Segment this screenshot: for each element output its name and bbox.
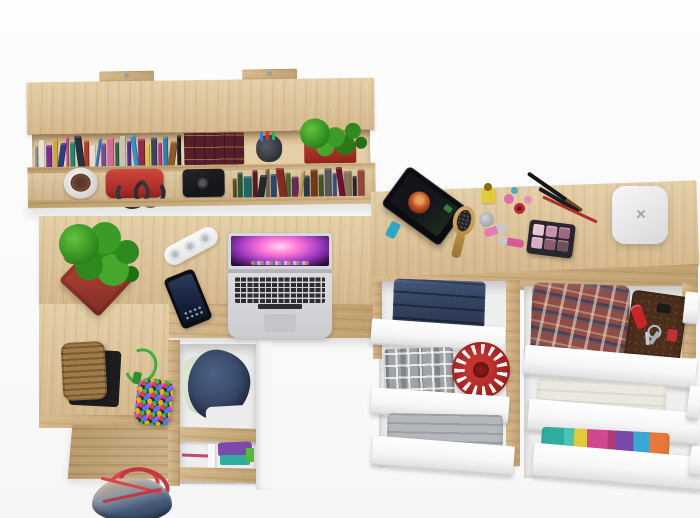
encyclopedia-books [184,132,244,165]
palette-pan [545,225,557,237]
book-spine [115,142,120,166]
laptop-deck [228,273,332,338]
hairbrush-handle [451,232,466,258]
book-spine [107,137,114,166]
pink-pencil [182,454,208,458]
car-key-fob [656,303,671,314]
succulent-plant [59,224,99,264]
desk-pedestal [168,340,270,490]
palette-pan [544,238,556,250]
camera-lens [197,177,209,189]
book-spine [138,139,145,166]
book-spine [146,144,151,166]
palette-pan [532,224,544,236]
book-spine [101,144,106,167]
book-spine [66,137,70,167]
power-socket [197,230,213,246]
laptop-screen-lid [228,233,332,269]
wireless-router [612,186,668,244]
book-spine [358,170,365,197]
laptop-dock [251,261,309,265]
book-spine [325,168,332,197]
movie-artwork [404,187,435,218]
book-spine [177,135,182,165]
red-knit-hat [452,342,510,398]
palette-pan [558,227,570,239]
laptop-screen [231,236,329,266]
bag-body [92,478,172,518]
pen [260,132,263,141]
drawer-divider [208,444,215,468]
book-spine [304,175,310,197]
pedestal-open-drawer [180,344,256,484]
white-cloth [206,405,251,427]
paperback-books [35,133,181,167]
book-spine [271,174,277,198]
nail-polish-red [514,203,525,214]
laptop-spacebar [258,304,302,309]
pen-cup [256,135,282,162]
palette-pan [531,237,543,249]
palette-pan [557,240,569,252]
cosmetic-dot-teal [511,187,518,194]
laptop-trackpad [264,314,296,332]
nail-polish-yellow [482,188,495,203]
book-spine [237,172,243,198]
bracket-screw [124,73,129,78]
bracket-screw [267,71,272,76]
cosmetic-jar-silver [479,212,494,227]
book-spine [332,173,336,198]
drawer-front-end [682,291,699,324]
book-spine [46,145,53,167]
pedestal-drawer-edge [180,467,262,482]
book-spine [244,177,252,199]
red-keychain-fob [666,329,678,342]
laptop-keyboard [235,277,325,303]
book-spine [310,169,318,197]
power-socket [167,246,183,262]
power-socket [182,238,198,254]
red-handbag [105,169,163,199]
pen [266,131,269,140]
pen [272,132,275,140]
book-spine [84,140,89,166]
wall-shelf [26,68,376,209]
book-spine [120,136,126,166]
laptop [228,233,332,338]
green-folded-clothes [246,448,254,462]
polish-cap [484,183,492,191]
book-spine [151,138,157,166]
cosmetic-bottle-pink [504,194,514,204]
cork-basket [61,341,108,401]
cup-plant-soil [70,174,90,192]
corner-desk [39,216,376,490]
book-spine [35,146,39,167]
hardcover-books [232,166,364,199]
bag-red-piping [102,488,161,503]
book-spine [352,176,357,197]
book-spine [167,141,177,165]
tablet-stand [385,221,401,240]
smartphone-app-icons [182,305,204,322]
book-spine [158,143,162,166]
book-spine [39,140,45,167]
screen-thumbnail [443,204,453,214]
key [645,332,650,345]
eyeshadow-palette [526,219,576,258]
book-spine [266,169,270,198]
book-spine [233,178,237,199]
book-spine [319,174,324,197]
beaded-pouch-toy [133,377,174,427]
hairbrush-bristles [455,208,474,233]
cosmetic-dot-pink [524,196,532,204]
product-photo-stage [0,0,700,518]
black-camera [182,169,224,198]
white-cup-plant [63,167,97,198]
denim-floor-bag [92,470,174,518]
pedestal-side-panel [256,340,272,490]
